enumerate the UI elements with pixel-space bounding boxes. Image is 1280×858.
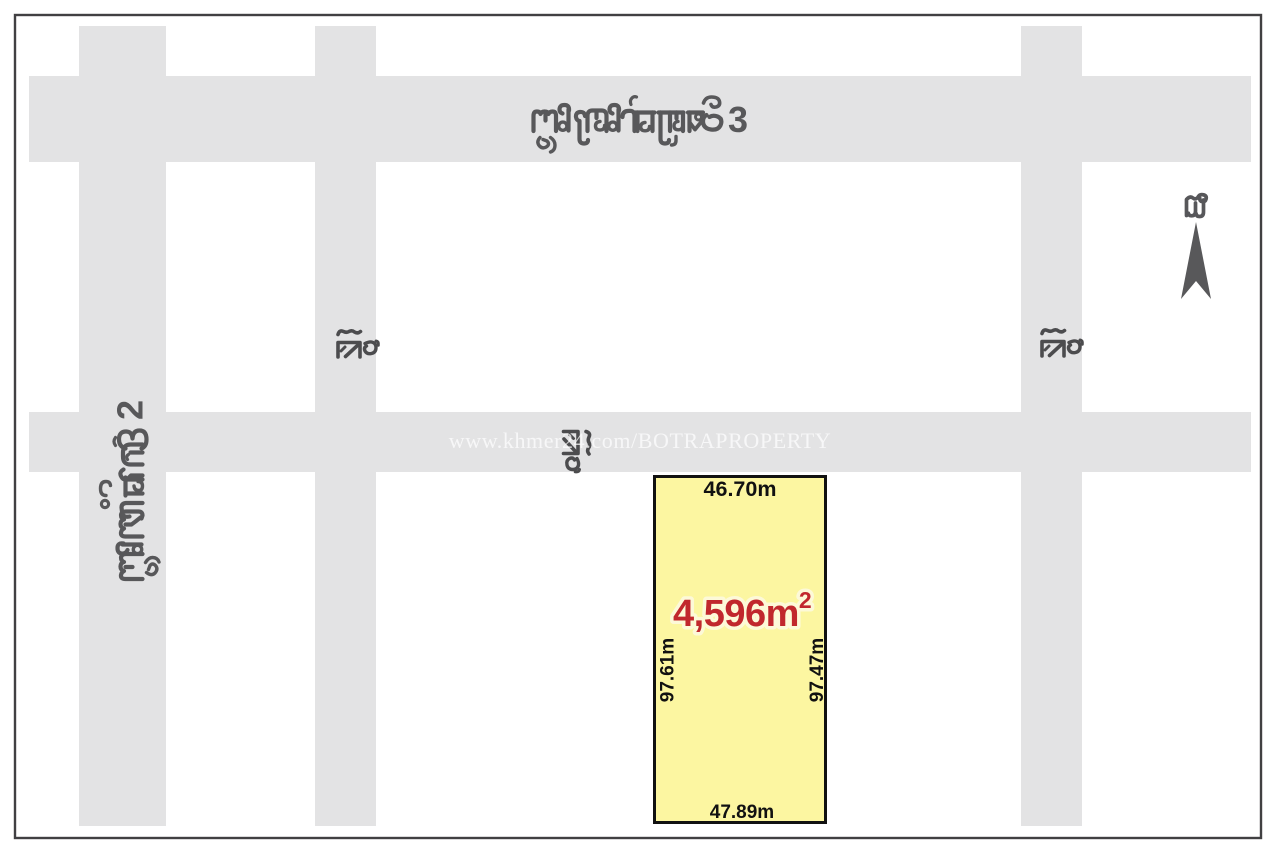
svg-text:97.61m: 97.61m (658, 638, 679, 702)
svg-text:2: 2 (110, 400, 151, 420)
svg-text:97.47m: 97.47m (807, 638, 828, 702)
svg-text:4,596m2: 4,596m2 (673, 587, 812, 635)
svg-text:www.khmer24.com/BOTRAPROPERTY: www.khmer24.com/BOTRAPROPERTY (449, 428, 832, 453)
svg-text:47.89m: 47.89m (710, 802, 774, 823)
svg-text:46.70m: 46.70m (704, 477, 777, 501)
svg-text:3: 3 (728, 99, 748, 140)
